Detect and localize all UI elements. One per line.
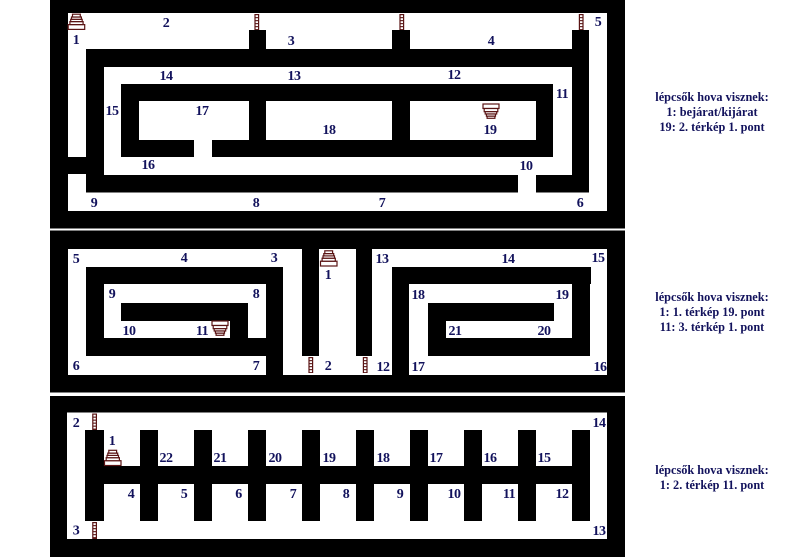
svg-text:15: 15 [538,451,552,466]
svg-text:8: 8 [253,287,260,302]
svg-text:9: 9 [397,487,404,502]
svg-text:22: 22 [160,451,174,466]
svg-text:5: 5 [181,487,188,502]
svg-text:10: 10 [520,159,534,174]
svg-text:19: 2. térkép 1. pont: 19: 2. térkép 1. pont [659,120,765,134]
svg-text:18: 18 [377,451,391,466]
svg-text:2: 2 [73,416,80,431]
svg-text:lépcsők hova visznek:: lépcsők hova visznek: [655,90,768,104]
svg-text:21: 21 [449,324,463,339]
svg-text:1: 2. térkép 11. pont: 1: 2. térkép 11. pont [660,478,765,492]
svg-text:4: 4 [488,34,495,49]
svg-text:13: 13 [288,69,302,84]
svg-text:12: 12 [556,487,570,502]
svg-text:8: 8 [253,196,260,211]
svg-text:5: 5 [73,252,80,267]
svg-text:15: 15 [592,251,606,266]
svg-text:1: bejárat/kijárat: 1: bejárat/kijárat [666,105,758,119]
svg-text:8: 8 [343,487,350,502]
svg-text:10: 10 [448,487,462,502]
svg-text:17: 17 [412,360,426,375]
svg-text:14: 14 [593,416,607,431]
svg-text:17: 17 [196,104,210,119]
svg-text:20: 20 [538,324,552,339]
svg-text:3: 3 [288,34,295,49]
svg-text:21: 21 [214,451,228,466]
svg-text:14: 14 [502,252,516,267]
svg-text:1: 1 [325,268,332,283]
svg-text:3: 3 [73,524,80,539]
svg-text:4: 4 [181,251,188,266]
svg-text:13: 13 [593,524,607,539]
svg-text:9: 9 [109,287,116,302]
svg-text:11: 3. térkép 1. pont: 11: 3. térkép 1. pont [660,320,765,334]
svg-text:1: 1 [109,434,116,449]
svg-text:17: 17 [430,451,444,466]
svg-text:19: 19 [556,288,570,303]
svg-text:16: 16 [594,360,608,375]
svg-text:14: 14 [160,69,174,84]
svg-text:9: 9 [91,196,98,211]
svg-text:lépcsők hova visznek:: lépcsők hova visznek: [655,463,768,477]
svg-text:11: 11 [503,487,516,502]
svg-text:20: 20 [269,451,283,466]
svg-text:2: 2 [163,16,170,31]
svg-text:19: 19 [484,123,498,138]
svg-text:16: 16 [484,451,498,466]
svg-text:3: 3 [271,251,278,266]
svg-text:2: 2 [325,359,332,374]
svg-text:7: 7 [290,487,297,502]
svg-text:7: 7 [379,196,386,211]
svg-text:13: 13 [376,252,390,267]
svg-text:6: 6 [577,196,584,211]
svg-text:11: 11 [196,324,209,339]
svg-text:5: 5 [595,15,602,30]
svg-text:lépcsők hova visznek:: lépcsők hova visznek: [655,290,768,304]
svg-text:18: 18 [412,288,426,303]
svg-text:12: 12 [377,360,391,375]
svg-text:18: 18 [323,123,337,138]
svg-text:15: 15 [106,104,120,119]
svg-text:10: 10 [123,324,137,339]
svg-text:4: 4 [128,487,135,502]
svg-text:12: 12 [448,68,462,83]
svg-text:6: 6 [235,487,242,502]
svg-text:11: 11 [556,87,569,102]
svg-text:1: 1 [73,33,80,48]
svg-text:1: 1. térkép 19. pont: 1: 1. térkép 19. pont [659,305,765,319]
svg-text:7: 7 [253,359,260,374]
svg-text:16: 16 [142,158,156,173]
svg-text:6: 6 [73,359,80,374]
svg-text:19: 19 [323,451,337,466]
